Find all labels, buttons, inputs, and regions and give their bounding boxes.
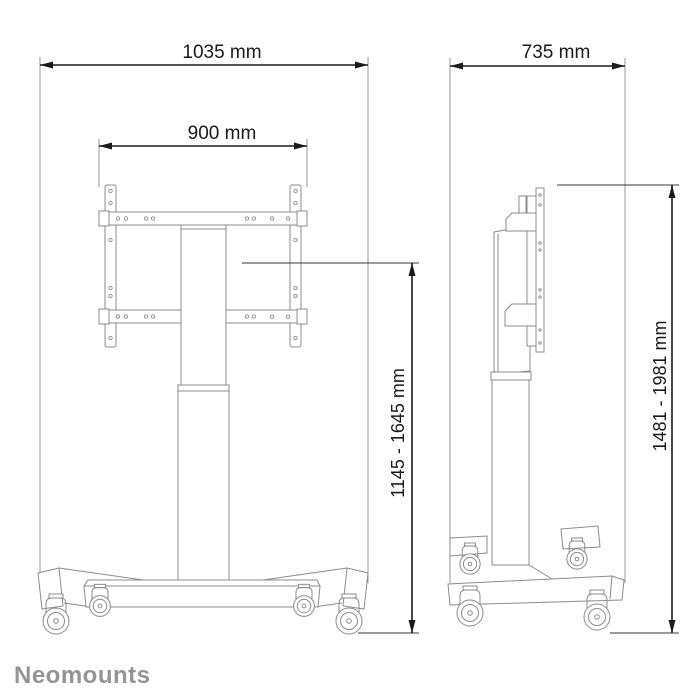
column-outer-tube <box>492 380 529 565</box>
dim-front-mount-width: 900 mm <box>99 123 307 150</box>
bar-tab <box>99 211 109 226</box>
side-base <box>448 526 624 630</box>
vesa-plate-side <box>536 188 544 352</box>
dim-side-depth: 735 mm <box>450 42 625 70</box>
bar-tab <box>297 211 307 226</box>
dimension-drawing: 1035 mm 900 mm <box>0 0 700 700</box>
column-inner-tube <box>181 225 226 385</box>
neomounts-logo: Neomounts <box>14 662 151 690</box>
column-collar <box>178 385 229 391</box>
arrow-right-icon <box>612 63 625 70</box>
arrow-left-icon <box>40 62 53 69</box>
bar-tab <box>99 309 109 324</box>
front-lift-column <box>178 225 229 581</box>
arrow-down-icon <box>409 620 416 633</box>
dim-side-depth-label: 735 mm <box>522 42 591 63</box>
dim-front-total-width-label: 1035 mm <box>182 42 261 63</box>
side-monitor-bracket <box>494 188 544 374</box>
mount-hook-bottom <box>505 304 536 326</box>
dim-front-mount-width-label: 900 mm <box>188 123 257 144</box>
dim-front-height-label: 1145 - 1645 mm <box>388 368 408 498</box>
dim-front-total-width: 1035 mm <box>40 42 368 69</box>
mount-hook-top <box>506 213 536 231</box>
side-view: 735 mm <box>448 42 679 633</box>
column-outer-tube <box>178 391 229 581</box>
monitor-panel-side <box>494 226 530 374</box>
base-beam <box>84 580 320 607</box>
front-view: 1035 mm 900 mm <box>38 42 419 634</box>
rail-tab-top <box>519 196 526 215</box>
arrow-up-icon <box>409 263 416 276</box>
dim-side-height-label: 1481 - 1981 mm <box>650 320 670 451</box>
product-dimension-diagram: 1035 mm 900 mm <box>0 0 700 700</box>
side-lift-column <box>491 372 531 565</box>
arrow-down-icon <box>669 620 676 633</box>
arrow-right-icon <box>294 143 307 150</box>
mount-bar-top <box>109 212 297 225</box>
arrow-left-icon <box>99 143 112 150</box>
arrow-right-icon <box>355 62 368 69</box>
bar-tab <box>297 309 307 324</box>
column-collar <box>491 372 531 380</box>
arrow-up-icon <box>669 185 676 198</box>
arrow-left-icon <box>450 63 463 70</box>
